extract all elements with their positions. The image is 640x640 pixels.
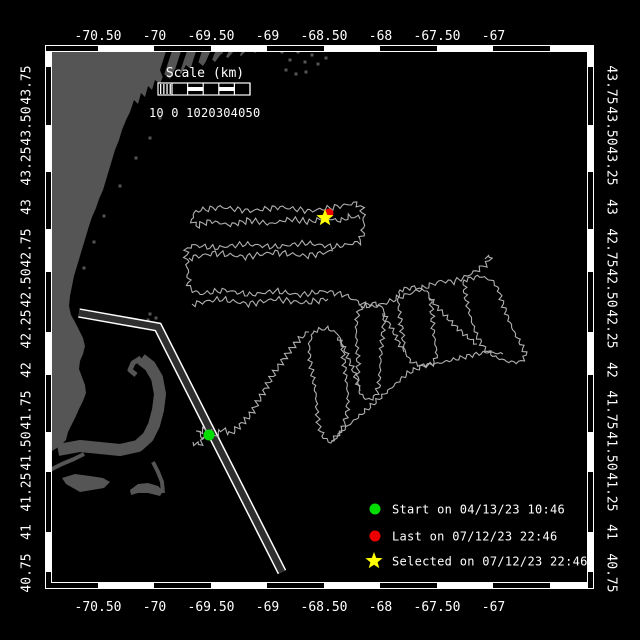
axis-label-lat-right: 43.25: [604, 146, 619, 185]
axis-label-lat-right: 41: [604, 524, 619, 540]
frame-tick-black: [46, 472, 51, 532]
axis-label-lon-top: -67.50: [414, 29, 461, 44]
legend-marker-dot: [370, 531, 381, 542]
axis-label-lon-top: -68.50: [301, 29, 348, 44]
axis-label-lat-right: 41.75: [604, 390, 619, 429]
legend-markers: [365, 504, 382, 569]
axis-label-lat-left: 43.75: [20, 65, 35, 104]
axis-label-lat-left: 42.25: [20, 309, 35, 348]
axis-label-lat-left: 42.75: [20, 228, 35, 267]
axis-label-lat-right: 43: [604, 199, 619, 215]
axis-label-lat-right: 43.75: [604, 65, 619, 104]
map-content: [45, 45, 527, 572]
glider-track-path: [192, 297, 328, 308]
island: [155, 317, 158, 320]
island: [135, 157, 138, 160]
map-figure-window: -70.50-70.50-70-70-69.50-69.50-69-69-68.…: [0, 0, 640, 640]
axis-label-lon-top: -69.50: [188, 29, 235, 44]
axis-label-lon-bottom: -68: [369, 600, 392, 615]
axis-label-lon-bottom: -69.50: [188, 600, 235, 615]
island: [83, 267, 86, 270]
scale-bar-numbers: 10 0 1020304050: [149, 106, 260, 120]
frame-tick-black: [154, 46, 211, 51]
frame-tick-black: [493, 583, 550, 588]
frame-tick-black: [380, 583, 437, 588]
scale-bar-divider: [249, 83, 250, 95]
start-position-dot: [204, 430, 215, 441]
scale-bar-stripe-segment: [188, 87, 204, 91]
island: [325, 57, 328, 60]
island: [305, 71, 308, 74]
map-canvas: -70.50-70.50-70-70-69.50-69.50-69-69-68.…: [0, 0, 640, 640]
scale-bar-hatch-line: [160, 84, 161, 94]
axis-label-lon-top: -69: [256, 29, 279, 44]
legend-marker-star: [365, 552, 382, 568]
glider-track-path: [184, 202, 493, 308]
axis-label-lon-bottom: -70: [143, 600, 166, 615]
axis-label-lat-right: 41.50: [604, 431, 619, 470]
frame-tick-black: [46, 272, 51, 332]
corridor-outline: [79, 313, 282, 572]
frame-tick-black: [267, 46, 324, 51]
scale-bar-stripe-segment: [219, 87, 235, 91]
island: [311, 54, 314, 57]
frame-tick-black: [46, 572, 51, 588]
island: [304, 61, 307, 64]
frame-tick-black: [267, 583, 324, 588]
axis-label-lat-left: 41.75: [20, 390, 35, 429]
scale-bar-hatch-line: [170, 84, 171, 94]
frame-tick-black: [46, 375, 51, 432]
frame-tick-black: [46, 67, 51, 125]
axis-label-lat-right: 42.75: [604, 228, 619, 267]
scale-bar-divider: [171, 83, 172, 95]
frame-tick-black: [46, 172, 51, 229]
axis-label-lat-right: 42.25: [604, 309, 619, 348]
frame-tick-black: [380, 46, 437, 51]
axis-label-lat-left: 43.25: [20, 146, 35, 185]
axis-label-lon-top: -70.50: [75, 29, 122, 44]
island: [285, 69, 288, 72]
island: [317, 63, 320, 66]
axis-label-lon-bottom: -70.50: [75, 600, 122, 615]
axis-label-lon-bottom: -68.50: [301, 600, 348, 615]
land-polygon: [130, 483, 163, 496]
axis-label-lat-left: 42.50: [20, 268, 35, 307]
glider-track-path: [308, 326, 350, 443]
land-peninsula: [130, 358, 141, 375]
legend-label-last: Last on 07/12/23 22:46: [392, 530, 558, 544]
axis-label-lat-left: 42: [20, 362, 35, 378]
axis-label-lat-left: 43.50: [20, 106, 35, 145]
frame-tick-black: [588, 172, 593, 229]
axis-label-lat-right: 40.75: [604, 553, 619, 592]
axis-label-lon-bottom: -69: [256, 600, 279, 615]
frame-tick-black: [588, 375, 593, 432]
frame-tick-black: [588, 572, 593, 588]
island: [103, 215, 106, 218]
glider-track-path: [338, 337, 361, 391]
island: [149, 137, 152, 140]
legend-marker-dot: [370, 504, 381, 515]
track-markers: [204, 209, 334, 441]
frame-tick-black: [588, 67, 593, 125]
axis-label-lat-left: 43: [20, 199, 35, 215]
legend-label-start: Start on 04/13/23 10:46: [392, 503, 565, 517]
corridor-interior: [79, 313, 282, 572]
frame-tick-black: [588, 272, 593, 332]
legend-label-selected: Selected on 07/12/23 22:46: [392, 555, 588, 569]
glider-track-path: [196, 214, 360, 228]
axis-label-lat-right: 42: [604, 362, 619, 378]
island: [295, 73, 298, 76]
glider-track-path: [429, 297, 477, 344]
island: [289, 59, 292, 62]
axis-label-lon-top: -68: [369, 29, 392, 44]
land-peninsula: [50, 454, 84, 470]
axis-label-lon-bottom: -67.50: [414, 600, 461, 615]
axis-label-lon-top: -70: [143, 29, 166, 44]
axis-label-lat-right: 42.50: [604, 268, 619, 307]
frame-tick-black: [45, 583, 98, 588]
scale-bar: Scale (km) 10 0 1020304050: [149, 66, 260, 120]
axis-label-lat-right: 41.25: [604, 472, 619, 511]
axis-label-lat-left: 41.50: [20, 431, 35, 470]
axis-label-lat-left: 41.25: [20, 472, 35, 511]
scale-bar-title: Scale (km): [166, 66, 244, 81]
frame-tick-black: [588, 472, 593, 532]
axis-label-lat-right: 43.50: [604, 106, 619, 145]
island: [119, 185, 122, 188]
axis-label-lat-left: 41: [20, 524, 35, 540]
frame-tick-black: [154, 583, 211, 588]
island: [149, 313, 152, 316]
frame-tick-black: [45, 46, 98, 51]
scale-bar-hatch-line: [163, 84, 164, 94]
scale-bar-graphic: [158, 83, 251, 95]
axis-label-lon-bottom: -67: [482, 600, 505, 615]
glider-track-path: [189, 250, 333, 261]
glider-track-path: [463, 275, 527, 364]
legend: Start on 04/13/23 10:46 Last on 07/12/23…: [365, 503, 587, 569]
land-polygon: [62, 474, 110, 492]
axis-label-lat-left: 40.75: [20, 553, 35, 592]
scale-bar-hatch-line: [166, 84, 167, 94]
frame-tick-black: [493, 46, 550, 51]
shipping-corridor: [79, 313, 282, 572]
island: [93, 241, 96, 244]
axis-label-lon-top: -67: [482, 29, 505, 44]
glider-track-layer: [184, 202, 528, 446]
